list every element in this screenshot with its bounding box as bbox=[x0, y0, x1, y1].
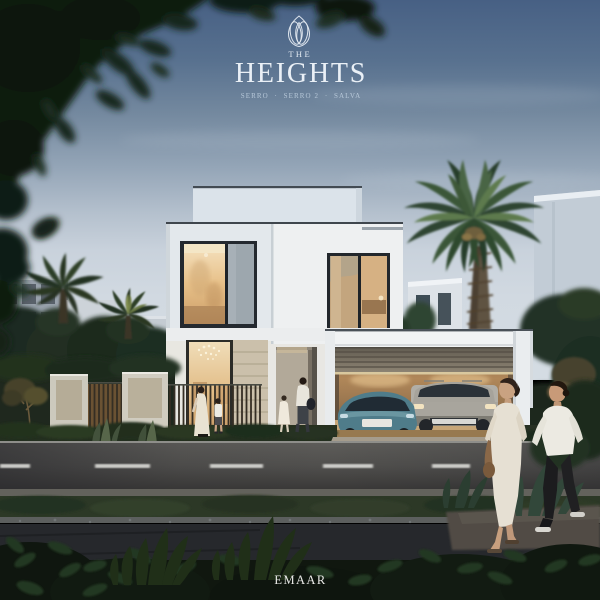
svg-text:EMAAR: EMAAR bbox=[274, 573, 326, 587]
svg-text:SERRO · SERRO 2 · SALVA: SERRO · SERRO 2 · SALVA bbox=[241, 92, 362, 100]
svg-text:HEIGHTS: HEIGHTS bbox=[235, 58, 367, 89]
